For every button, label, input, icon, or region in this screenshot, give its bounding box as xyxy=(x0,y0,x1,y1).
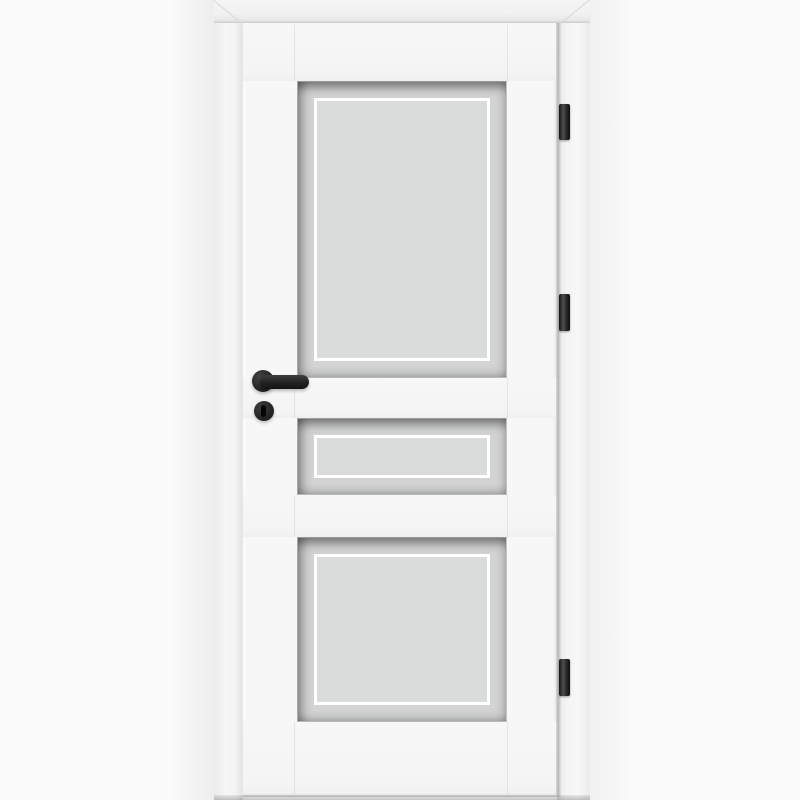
keyhole-slot xyxy=(261,405,266,417)
stile-joint-line xyxy=(507,495,508,537)
stile-joint-line xyxy=(507,722,508,797)
hinge-middle xyxy=(559,294,570,331)
wall-shadow-right xyxy=(590,0,636,800)
floor-contact-shadow xyxy=(214,795,590,800)
glass-panel-top xyxy=(297,81,507,378)
frame-casing-left xyxy=(214,0,243,800)
wall-shadow-left xyxy=(168,0,214,800)
door-handle-lever xyxy=(260,375,309,389)
stile-joint-line xyxy=(294,722,295,797)
door-top-rail xyxy=(243,23,558,81)
door-frame-gap-left xyxy=(241,23,243,797)
frame-casing-head xyxy=(214,0,590,23)
glass-panel-middle xyxy=(297,418,507,495)
hinge-top xyxy=(559,104,570,140)
keyhole-escutcheon xyxy=(254,401,274,421)
glass-outline xyxy=(314,98,490,361)
door-mid-rail-lower xyxy=(243,495,558,537)
stile-joint-line xyxy=(507,378,508,418)
glass-outline xyxy=(314,435,490,478)
glass-outline xyxy=(314,554,490,705)
hinge-bottom xyxy=(559,659,570,696)
stile-joint-line xyxy=(294,23,295,81)
stile-joint-line xyxy=(294,495,295,537)
door-bottom-rail xyxy=(243,722,558,797)
door-leaf xyxy=(243,23,558,797)
stile-joint-line xyxy=(507,23,508,81)
door-product-photo xyxy=(0,0,800,800)
glass-panel-bottom xyxy=(297,537,507,722)
